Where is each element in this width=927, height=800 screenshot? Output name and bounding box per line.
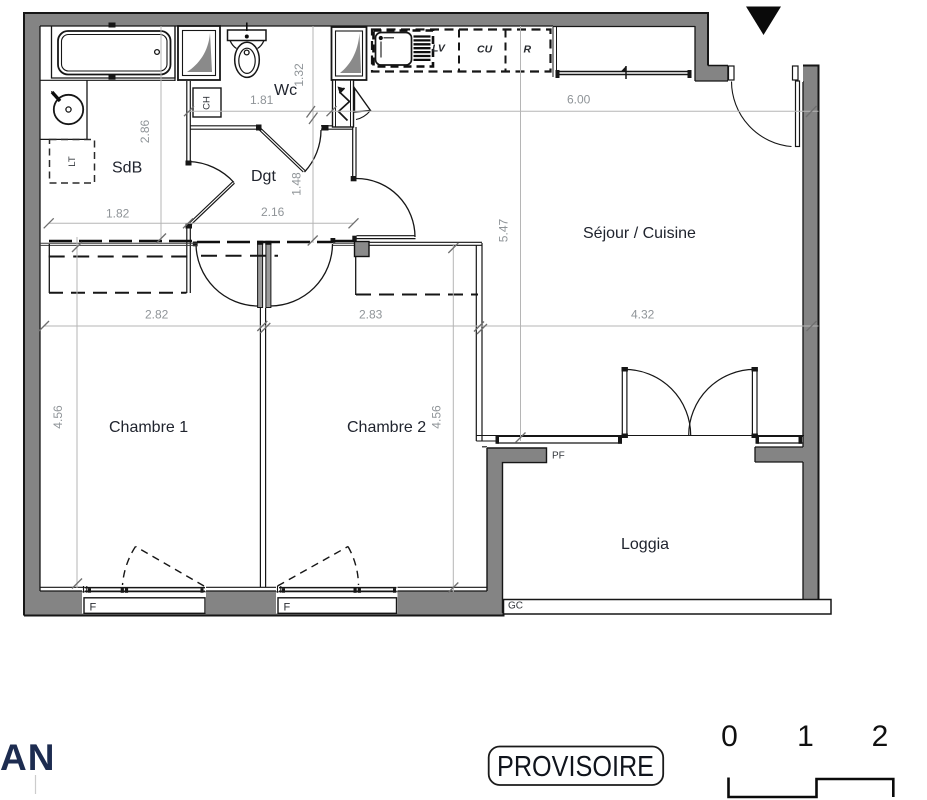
svg-text:2: 2: [872, 720, 889, 753]
svg-text:6.00: 6.00: [567, 93, 591, 107]
svg-text:F: F: [284, 602, 291, 614]
svg-text:4.56: 4.56: [51, 405, 65, 429]
svg-text:Chambre 2: Chambre 2: [347, 419, 426, 436]
svg-text:GC: GC: [508, 601, 523, 612]
svg-text:1.81: 1.81: [250, 93, 274, 107]
svg-text:PF: PF: [552, 451, 565, 462]
svg-text:CH: CH: [202, 96, 213, 110]
svg-text:Chambre 1: Chambre 1: [109, 419, 188, 436]
svg-text:LV: LV: [432, 43, 446, 55]
svg-text:1.32: 1.32: [292, 63, 306, 87]
svg-text:1.48: 1.48: [290, 172, 304, 196]
svg-text:2.16: 2.16: [261, 205, 285, 219]
svg-text:AN: AN: [0, 737, 55, 778]
svg-text:SdB: SdB: [112, 160, 142, 177]
svg-text:CU: CU: [477, 44, 493, 56]
svg-text:4.56: 4.56: [430, 405, 444, 429]
svg-text:F: F: [90, 602, 97, 614]
svg-text:2.82: 2.82: [145, 308, 169, 322]
svg-text:Loggia: Loggia: [621, 536, 669, 553]
svg-text:4.32: 4.32: [631, 308, 655, 322]
svg-text:5.47: 5.47: [496, 218, 510, 242]
svg-text:Séjour / Cuisine: Séjour / Cuisine: [583, 225, 696, 242]
svg-text:1.82: 1.82: [106, 207, 130, 221]
svg-text:2.83: 2.83: [359, 308, 383, 322]
svg-text:Dgt: Dgt: [251, 168, 276, 185]
svg-text:2.86: 2.86: [138, 119, 152, 143]
svg-text:R: R: [524, 44, 532, 56]
svg-text:0: 0: [721, 720, 738, 753]
svg-text:PROVISOIRE: PROVISOIRE: [497, 751, 654, 783]
svg-text:LT: LT: [67, 156, 78, 167]
svg-text:1: 1: [797, 720, 814, 753]
